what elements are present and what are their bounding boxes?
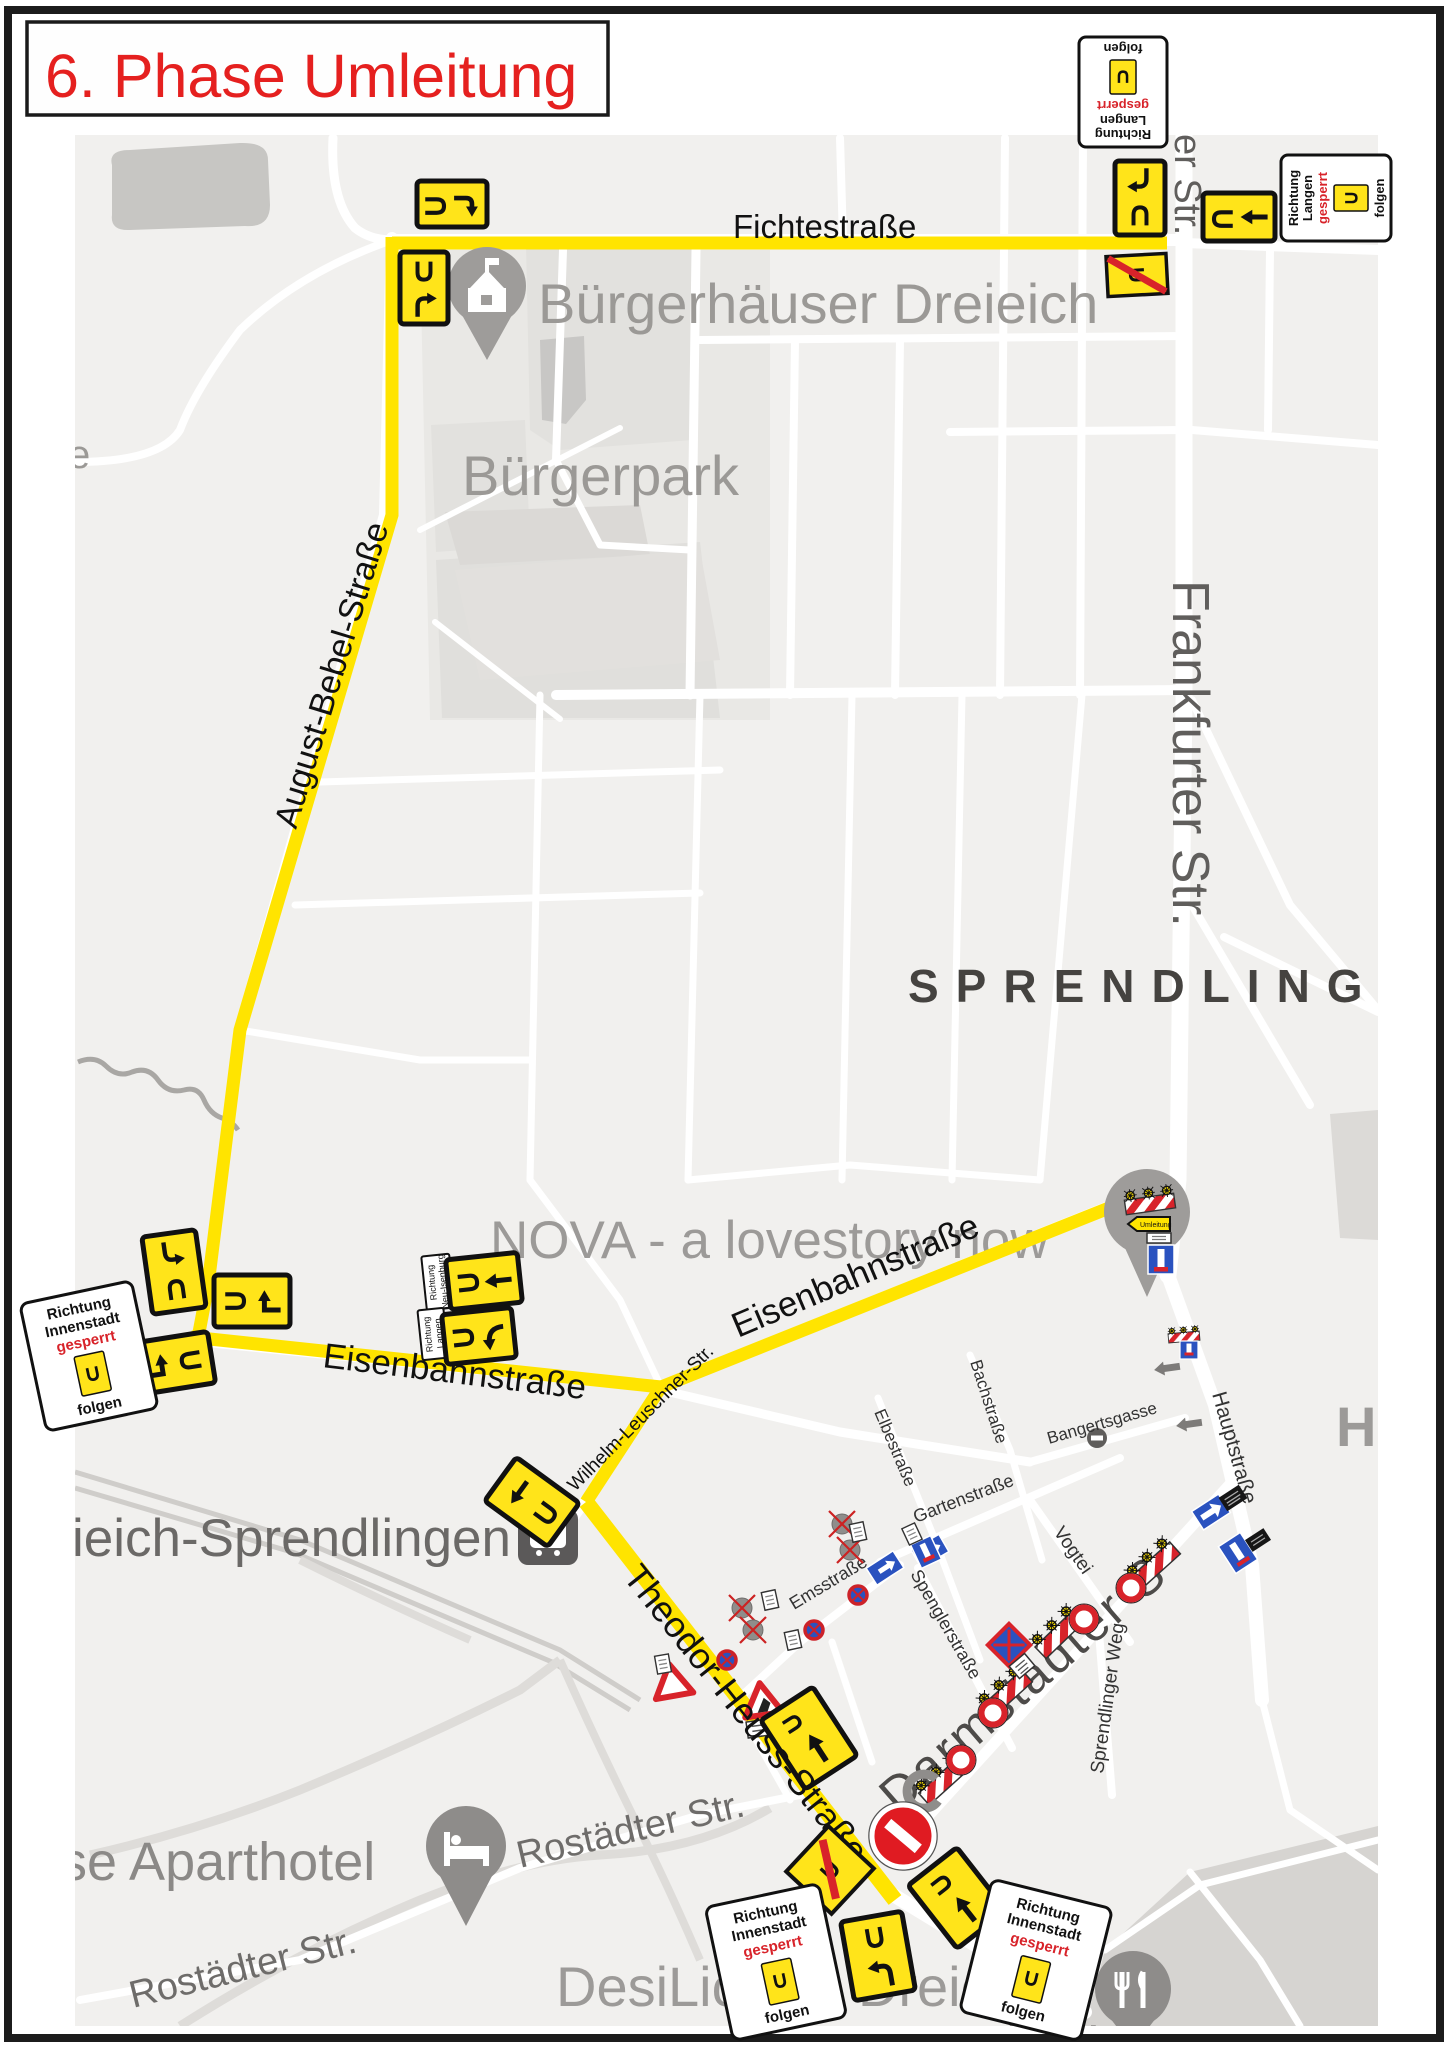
svg-text:gesperrt: gesperrt (1315, 171, 1330, 224)
svg-text:Bürgerpark: Bürgerpark (462, 444, 740, 507)
svg-text:Fichtestraße: Fichtestraße (733, 208, 916, 245)
svg-text:6. Phase Umleitung: 6. Phase Umleitung (45, 42, 577, 110)
svg-text:H: H (1336, 1395, 1376, 1458)
svg-text:folgen: folgen (1103, 41, 1142, 56)
svg-text:Richtung: Richtung (1095, 127, 1151, 142)
svg-text:Bürgerhäuser Dreieich: Bürgerhäuser Dreieich (538, 272, 1098, 335)
svg-text:Langen: Langen (1300, 175, 1315, 221)
svg-text:SPRENDLING: SPRENDLING (908, 960, 1380, 1012)
svg-text:Richtung: Richtung (1286, 170, 1301, 226)
svg-text:folgen: folgen (1372, 178, 1387, 217)
svg-text:se Aparthotel: se Aparthotel (60, 1832, 375, 1892)
svg-text:Frankfurter Str.: Frankfurter Str. (1161, 580, 1219, 927)
svg-text:ieich-Sprendlingen: ieich-Sprendlingen (72, 1509, 511, 1568)
svg-text:Umleitung: Umleitung (1140, 1222, 1172, 1229)
svg-text:gesperrt: gesperrt (1096, 98, 1149, 113)
svg-text:Langen: Langen (1100, 113, 1146, 128)
